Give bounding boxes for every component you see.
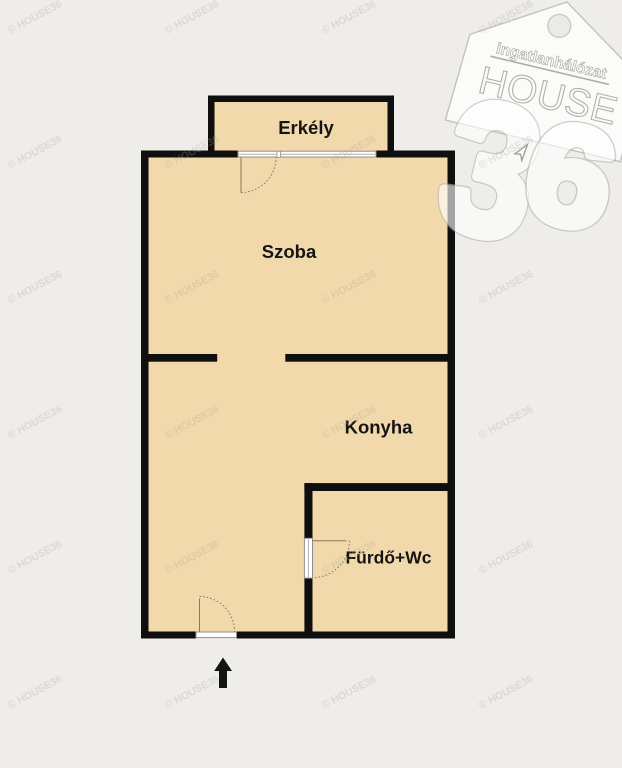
svg-text:Erkély: Erkély [278,117,334,138]
svg-text:Szoba: Szoba [262,241,317,262]
